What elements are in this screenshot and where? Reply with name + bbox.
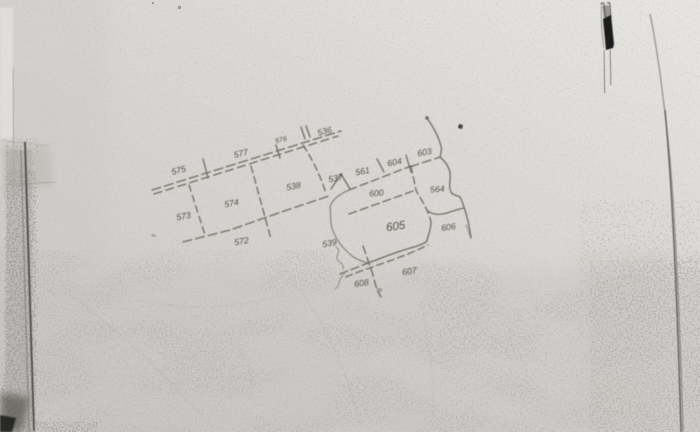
- svg-text:m: m: [377, 288, 382, 294]
- svg-text:608: 608: [354, 277, 370, 289]
- svg-text:606: 606: [441, 221, 457, 233]
- svg-text:600: 600: [369, 187, 384, 198]
- svg-text:564: 564: [430, 183, 445, 194]
